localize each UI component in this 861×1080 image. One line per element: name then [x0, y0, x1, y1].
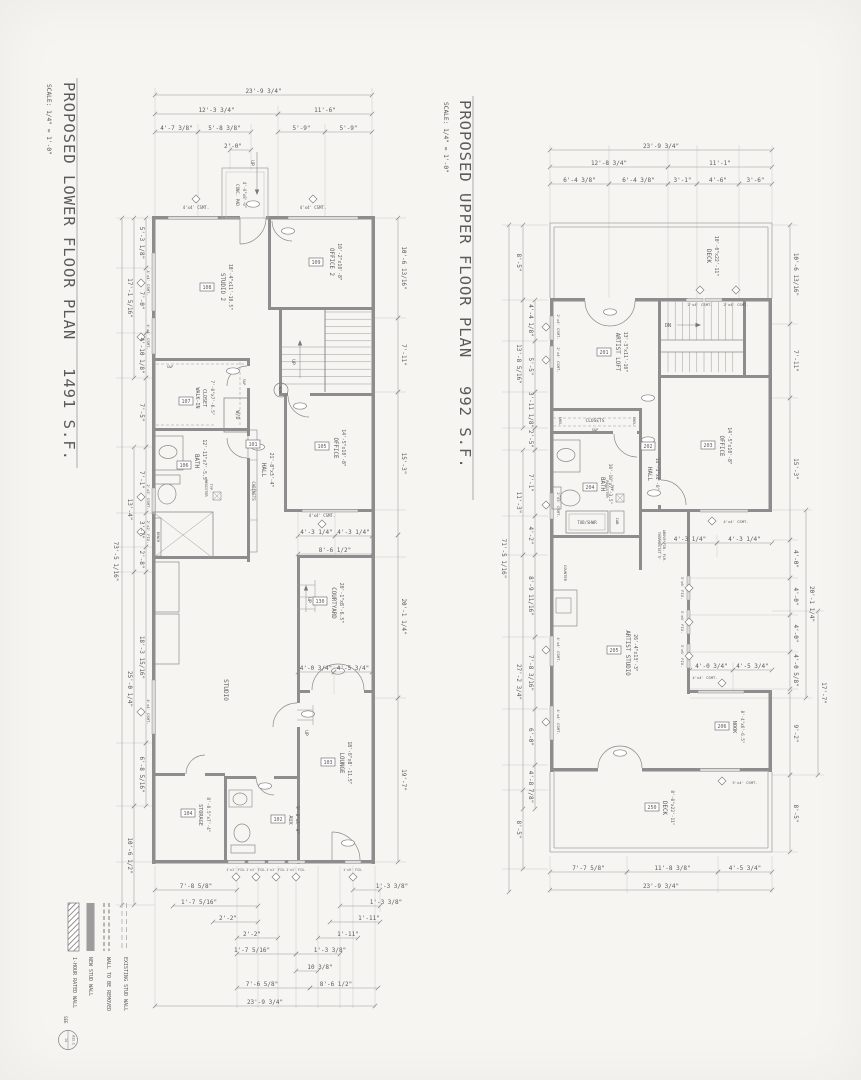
room-tag: 203 [703, 443, 712, 449]
room-tag: 102 [273, 817, 282, 823]
window-tag-label: 4'x4' CSMT. [309, 513, 336, 518]
legend-label: EXISTING STUD WALL [122, 957, 128, 1011]
dim-label: 8'-6 1/2" [319, 547, 352, 554]
dim-label: 7'-1" [138, 471, 145, 489]
window [700, 769, 740, 772]
dim-label: 1'-3 3/8" [370, 899, 403, 906]
window-tag-label: 4'x4' CSMT. [146, 270, 151, 295]
room-size: 9'-8"x5'-8" [295, 806, 300, 834]
room-name: STUDIO 2 [219, 273, 225, 301]
room-size: 7'-0"x7'-6.5" [209, 380, 215, 415]
room-tag: 107 [181, 399, 190, 405]
wall [661, 375, 772, 378]
room-name: OFFICE [718, 436, 724, 457]
dim-label: 4'-3 1/4" [728, 536, 761, 543]
window-tag-diamond [718, 777, 726, 785]
window [152, 318, 156, 354]
room-name: ARTIST STUDIO [624, 630, 630, 676]
wall [372, 216, 376, 510]
dim-label: 71'-5 1/16" [500, 539, 507, 579]
room-size: 8'-0"x22'-11" [669, 790, 675, 825]
dim-label: 4'-6" [709, 177, 727, 184]
dim-label: 10'-6 13/16" [400, 246, 407, 289]
wall [550, 768, 598, 772]
wall [205, 773, 225, 776]
room-size: 20'-1"x8'-6.5" [338, 583, 344, 624]
note-label: BENCH [156, 532, 160, 543]
room-name: CLOSETS [586, 418, 605, 424]
window-tag-diamond [232, 873, 240, 881]
wall [297, 690, 300, 703]
room-size: 8'-8.5"x7'-4" [205, 797, 211, 832]
dim-label: 8'-5" [515, 820, 522, 838]
wall [372, 510, 376, 864]
note-label: TUB/SHWR [577, 520, 597, 525]
window-tag-diamond [309, 195, 317, 203]
window-tag-label: 4'x4' CSMT. [146, 324, 151, 349]
room-tag: 109 [311, 260, 320, 266]
rect [231, 845, 255, 853]
window-tag-label: 4'x4' CSMT. [692, 675, 717, 680]
dim-label: 6'-0" [527, 728, 534, 746]
dim-label: 7'-11" [400, 344, 407, 366]
dim-label: 7'-7 5/8" [572, 865, 605, 872]
wall [152, 556, 250, 559]
door-tag-oval [614, 750, 627, 756]
door-tag-oval [294, 403, 307, 409]
dim-label: 15'-3" [792, 458, 799, 480]
room-tag: 103 [323, 760, 332, 766]
window [550, 316, 554, 340]
room-tag: 205 [609, 648, 618, 654]
window [550, 636, 554, 666]
window-tag-diamond [137, 279, 145, 287]
room-name: OFFICE [332, 438, 338, 459]
note-label: UP [303, 730, 309, 736]
legend-label: 1-HOUR RATED WALL [71, 957, 77, 1008]
dim-label: 4'-7 3/8" [160, 125, 193, 132]
dim-label: 10'-6 13/16" [792, 253, 799, 296]
door-arc [240, 218, 266, 244]
dim-label: 1'-11" [337, 931, 359, 938]
dim-label: 4'-2" [527, 526, 534, 544]
wall [639, 408, 642, 570]
room-tag: 204 [585, 485, 594, 491]
arrow-head [696, 323, 702, 327]
room-tag: 108 [202, 285, 211, 291]
room-tag: 106 [179, 463, 188, 469]
note-label: UP [290, 359, 296, 365]
dim-label: 23'-9 3/4" [643, 143, 679, 150]
fixture [159, 446, 177, 459]
room-size: 14'-5"x10'-8" [340, 429, 346, 467]
note-label: COUNTER [563, 565, 568, 582]
room-name: OFFICE 2 [328, 248, 334, 276]
room-tag: 202 [643, 444, 652, 450]
window-tag-diamond [685, 652, 693, 660]
room-size: 14'-5"x10'-8" [726, 427, 732, 465]
room-tag: 250 [647, 805, 656, 811]
dim-label: 7'-0" [138, 291, 145, 309]
fixture [233, 793, 247, 805]
wall [297, 555, 300, 694]
rect [552, 440, 580, 472]
note-label: ABOVE FIN. FLR. [662, 530, 666, 562]
arrow-head [255, 190, 259, 196]
legend-swatch-rated-wall [68, 903, 79, 951]
window-tag-diamond [542, 356, 550, 364]
rect [153, 614, 179, 664]
dim-label: 4'-5 3/4" [729, 865, 762, 872]
dim-label: 11'-3" [515, 492, 522, 514]
dim-label: 5'-9" [292, 125, 310, 132]
dim-label: 4'-0 3/4" [695, 663, 728, 670]
plan-area: 1491 S.F. [60, 368, 78, 461]
window-tag-label: 1'x1' FIX. [266, 868, 286, 872]
note-label: SHEL [632, 417, 636, 425]
dim-label: 4'-10 1/8" [138, 337, 145, 373]
floor-plan-drawing: CONC. PAD4'-0"x8'-0"UPUPUPUPW/DW/HCABINE… [0, 0, 861, 1080]
note-label: THERMOSTAT 5' [657, 532, 661, 560]
dim-label: 12'-8 3/4" [591, 160, 627, 167]
window-tag-label: 4'x4' CSMT. [146, 699, 151, 724]
dim-label: 11'-6" [314, 107, 336, 114]
window-tag-label: 3'x6' FIX. [680, 577, 685, 600]
wall [743, 298, 746, 378]
note-label: S&P [592, 428, 599, 432]
room-size: 14'-1"x4'-0" [654, 458, 660, 491]
dim-label: 1'-3 3/8" [314, 947, 347, 954]
dim-label: 4'-0" [792, 587, 799, 605]
window [152, 253, 156, 311]
dim-label: 3'-7" [138, 521, 145, 539]
arrow-head [304, 585, 308, 591]
wall [225, 776, 256, 779]
detail-tag-label: A13.1 [72, 1035, 76, 1045]
sheet: CONC. PAD4'-0"x8'-0"UPUPUPUPW/DW/HCABINE… [0, 0, 861, 1080]
room-name: BATH [599, 477, 605, 491]
room-name: DECK [661, 801, 667, 815]
wall [268, 307, 374, 310]
wall [550, 431, 613, 434]
dim-label: 7'-8 5/8" [180, 883, 213, 890]
wall [247, 358, 250, 366]
dim-label: 4'-8 7/8" [527, 771, 534, 804]
dim-label: 8'-6 1/2" [320, 981, 353, 988]
fixture [557, 449, 575, 462]
window-tag-label: 2'x4' CSMT. [556, 314, 561, 339]
room-name: LOUNGE [338, 753, 344, 774]
dim-label: 7'-5" [138, 403, 145, 421]
legend-swatch-new-stud-wall [87, 903, 95, 951]
window-tag-diamond [272, 873, 280, 881]
window-tag-label: 3'x6' FIX. [680, 645, 685, 668]
window-tag-label: 2'x3' CSMT. [556, 492, 561, 517]
legend-label: WALL TO BE REMOVED [105, 957, 111, 1011]
note-label: CONC. PAD [235, 184, 240, 206]
dim-label: 5'-9" [339, 125, 357, 132]
room-size: 18'-6"x8'-11.5" [346, 741, 352, 784]
door-tag-oval [282, 228, 295, 234]
note-label: UP [249, 160, 255, 166]
plan-scale: SCALE: 1/4" = 1'-0" [442, 102, 449, 173]
room-size: 21'-8"x3'-4" [268, 453, 274, 488]
fixture [234, 824, 250, 842]
note-label: DN [665, 323, 671, 329]
dim-label: 2'-0" [224, 143, 242, 150]
dim-label: 73'-5 1/16" [112, 542, 119, 582]
window [302, 510, 358, 513]
window-tag-diamond [292, 873, 300, 881]
room-size: 13'-3"x11'-10" [622, 332, 628, 373]
note-label: CAB [615, 518, 620, 526]
dim-label: 17'-7" [820, 682, 827, 704]
dim-label: 8'-5" [515, 253, 522, 271]
window-tag-label: 1'x1' FIX. [226, 868, 246, 872]
door-tag-oval [604, 309, 617, 315]
room-size: 10'-2"x10'-8" [336, 243, 342, 281]
window [268, 861, 285, 864]
wall [722, 298, 772, 302]
room-size: 12'-11"x7'-5.5" [201, 439, 207, 482]
window-tag-diamond [542, 323, 550, 331]
dim-label: 6'-4 3/8" [563, 177, 596, 184]
dim-label: 4'-3 1/4" [337, 529, 370, 536]
wall [152, 773, 185, 776]
wall [769, 690, 773, 772]
window-tag-label: 4'x4' CSMT. [556, 637, 561, 662]
window-tag-label: 2'x2' FIX. [146, 521, 151, 544]
dim-label: 7'-11" [792, 350, 799, 372]
room-name: CLOSET [201, 389, 207, 407]
window [168, 217, 218, 220]
wall [635, 298, 688, 302]
room-name: STUDIO [222, 679, 229, 701]
door-tag-oval [302, 711, 315, 717]
dim-label: 25'-0 1/4" [126, 671, 133, 707]
door-arc [598, 746, 620, 768]
dim-label: 5'-5" [527, 357, 534, 375]
wall [550, 408, 642, 411]
dim-label: 3'-6" [746, 177, 764, 184]
door-arc [227, 438, 247, 458]
dim-label: 5'-8 3/8" [208, 125, 241, 132]
room-tag: 101 [248, 442, 257, 448]
door-arc [614, 434, 637, 457]
wall [769, 298, 773, 512]
dim-label: 10'-6 1/2" [126, 837, 133, 873]
dim-label: 17'-1 5/16" [126, 278, 133, 318]
dim-label: 19'-7" [400, 769, 407, 791]
room-tag: 206 [717, 724, 726, 730]
rect [153, 562, 179, 612]
wall [284, 393, 287, 512]
door-tag-oval [642, 395, 655, 401]
wall [550, 535, 642, 538]
note-label: S&P [242, 379, 246, 386]
note-label: W/H [278, 387, 283, 395]
window-tag-diamond [137, 493, 145, 501]
window [700, 510, 748, 513]
wall [274, 776, 298, 779]
wall [297, 727, 300, 864]
room-tag: 130 [315, 599, 324, 605]
rect [229, 790, 252, 807]
dim-label: 20'-1 1/4" [808, 586, 815, 622]
wall [268, 218, 271, 310]
window-tag-label: 5'x4' CSMT. [732, 780, 757, 785]
dim-label: 1'-11" [358, 915, 380, 922]
dim-label: 2'-5" [527, 430, 534, 448]
dim-label: 18'-3 15/16" [138, 636, 145, 679]
rect [556, 598, 571, 613]
room-size: 10'-10"x7'-3.5" [607, 464, 613, 505]
window-tag-label: 1'x1' FIX. [246, 868, 266, 872]
dim-label: 8'-9 11/16" [527, 576, 534, 616]
dim-label: 4'-5 3/4" [337, 665, 370, 672]
note-label: CABINETS [251, 481, 256, 501]
window-tag-diamond [542, 718, 550, 726]
dim-label: 3'-1" [673, 177, 691, 184]
wall [297, 555, 375, 558]
dim-label: 1'-7 5/16" [234, 947, 270, 954]
window-tag-diamond [685, 584, 693, 592]
room-size: 10'-0"x22'-11" [713, 236, 719, 277]
dim-label: 7'-1" [527, 474, 534, 492]
door-arc [186, 755, 205, 774]
dim-label: 3'-11 1/8" [527, 392, 534, 428]
window-tag-label: 2'x4' CSMT. [723, 302, 748, 307]
wall [152, 216, 156, 864]
room-name: DECK [705, 249, 711, 263]
note-label: UP [306, 597, 312, 603]
room-name: BATH [193, 454, 199, 468]
window-tag-diamond [318, 520, 326, 528]
window-tag-label: 2'x4' CSMT. [687, 302, 712, 307]
dim-label: 4'-0" [792, 550, 799, 568]
window [152, 488, 156, 514]
rect [154, 475, 180, 484]
window-tag-diamond [192, 195, 200, 203]
room-tag: 201 [599, 350, 608, 356]
wall [364, 690, 375, 693]
note-label: S&P [167, 365, 174, 369]
note-label: TYP. [209, 484, 213, 493]
fixture [560, 490, 580, 506]
room-tag: 105 [317, 444, 326, 450]
dim-label: 23'-9 3/4" [247, 999, 283, 1006]
wall [310, 393, 375, 396]
room-size: 18'-4"x11'-10.5" [227, 264, 233, 310]
room-size: 8'-4"x6'-6.5" [740, 711, 745, 744]
room-name: WALK-IN [194, 387, 200, 408]
window-tag-diamond [349, 873, 357, 881]
door-tag-oval [259, 783, 272, 789]
wall [152, 358, 250, 361]
arrow-head [298, 340, 302, 346]
wall [152, 428, 250, 431]
dim-label: 20'-1 1/4" [400, 598, 407, 634]
window [698, 691, 744, 694]
window-tag-label: 2'x3' CSMT. [146, 484, 151, 509]
dim-label: 15'-3" [400, 453, 407, 475]
detail-tag-label: 14 [64, 1038, 68, 1042]
window-tag-label: 4'x4' CSMT. [556, 709, 561, 734]
room-tag: 104 [183, 811, 192, 817]
window [288, 861, 305, 864]
note-label: W/D [234, 410, 240, 419]
room-size: 26'-4"x13'-3" [632, 634, 638, 672]
window [152, 680, 156, 734]
window-tag-label: 4'x4' CSMT. [300, 205, 327, 210]
dim-label: 2'-2" [219, 915, 237, 922]
dim-label: 1'-3 3/8" [376, 883, 409, 890]
wall [224, 776, 227, 862]
dim-label: 4'-0 3/4" [300, 665, 333, 672]
dim-label: 13'-8 5/16" [515, 344, 522, 384]
window-tag-diamond [542, 501, 550, 509]
window [288, 217, 358, 220]
room-name: ARTIST LOFT [614, 333, 620, 372]
window-tag-diamond [685, 618, 693, 626]
dim-label: 2'-2" [243, 931, 261, 938]
dim-label: 11'-1" [709, 160, 731, 167]
room-name: HALL [646, 467, 652, 481]
dim-label: 8'-5" [792, 804, 799, 822]
door-arc [273, 703, 297, 727]
window-tag-label: 2'x4' CSMT. [556, 347, 561, 372]
dim-label: 1'-7 5/16" [181, 899, 217, 906]
room-name: NOOK [731, 721, 737, 734]
window [550, 706, 554, 740]
room-name: HALL [260, 463, 266, 477]
fixture [158, 484, 176, 504]
window-tag-label: 1'x1' FIX. [286, 868, 306, 872]
window-tag-label: 4'x4' CSMT. [723, 519, 748, 524]
door-arc [620, 746, 642, 768]
dim-label: 12'-3 3/4" [198, 107, 234, 114]
door-arc [661, 480, 686, 505]
room-name: STORAGE [197, 804, 203, 826]
window-tag-diamond [708, 517, 716, 525]
window [550, 346, 554, 368]
dim-label: 6'-4 3/8" [622, 177, 655, 184]
door-tag-oval [342, 840, 355, 846]
dim-label: 27'-2 3/4" [515, 664, 522, 700]
dim-label: 7'-8 3/16" [527, 655, 534, 691]
plan-title: PROPOSED LOWER FLOOR PLAN [60, 82, 78, 340]
dim-label: 13'-4" [126, 499, 133, 521]
legend-label: NEW STUD WALL [87, 957, 93, 996]
window [345, 861, 361, 864]
room-name: AUX [287, 815, 293, 825]
dim-label: 6'-8 5/16" [138, 756, 145, 792]
window-tag-diamond [542, 646, 550, 654]
door-tag-oval [648, 490, 661, 496]
dim-label: 4'-3 1/4" [674, 536, 707, 543]
dim-label: 11'-8 3/8" [654, 865, 690, 872]
dim-label: 4'-4 1/8" [527, 304, 534, 337]
dim-label: 4'-0" [792, 624, 799, 642]
note-label: SHEL [558, 417, 562, 425]
legend-label: SEE [63, 1016, 68, 1024]
room-name: COURTYARD [330, 587, 336, 619]
dim-label: 7'-6 5/8" [246, 981, 279, 988]
dim-label: 9'-2" [792, 724, 799, 742]
door-tag-oval [247, 201, 260, 207]
plan-title: PROPOSED UPPER FLOOR PLAN [456, 100, 474, 358]
dim-label: 4'-5 3/4" [736, 663, 769, 670]
